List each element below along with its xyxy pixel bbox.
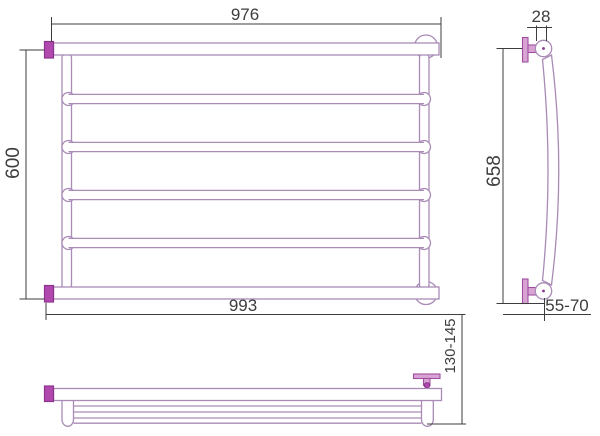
drawing-canvas: 976 600 993 28 658 55-70 130-145: [0, 0, 600, 436]
plan-wall-bracket-plate: [414, 374, 441, 379]
dimension-label-top-width: 976: [231, 5, 259, 24]
front-view: [45, 35, 440, 305]
dimension-label-depth: 130-145: [442, 318, 459, 373]
rail-tube: [62, 237, 431, 250]
top-collector-tube: [54, 43, 440, 55]
dimension-labels: 976 600 993 28 658 55-70 130-145: [3, 5, 589, 374]
dimension-label-height: 600: [3, 147, 24, 179]
plan-union-fitting: [45, 386, 54, 402]
dimension-label-tube-diameter: 28: [532, 7, 551, 26]
bottom-mount-center-dot: [542, 290, 545, 293]
right-riser-tube: [420, 53, 430, 290]
plan-left-tube-end: [62, 400, 74, 426]
curved-tube-profile: [543, 55, 559, 285]
plan-right-tube-end: [422, 400, 434, 426]
plan-collector-tube: [54, 389, 442, 401]
top-left-union-fitting: [45, 42, 54, 59]
top-wall-bracket-plate: [523, 38, 529, 63]
rail-tube: [62, 189, 431, 202]
dimension-label-bottom-width: 993: [229, 296, 257, 315]
top-mount-center-dot: [542, 47, 545, 50]
towel-rail-technical-drawing: 976 600 993 28 658 55-70 130-145: [0, 0, 600, 436]
rail-tube: [62, 141, 431, 154]
plan-bracket-dot: [424, 383, 429, 388]
bottom-wall-bracket-plate: [523, 279, 529, 304]
left-riser-tube: [62, 53, 72, 290]
dimension-label-side-height: 658: [484, 155, 505, 187]
side-view: [523, 38, 559, 304]
rail-tube: [62, 93, 431, 106]
bottom-left-union-fitting: [45, 286, 54, 303]
dimension-label-wall-offset: 55-70: [545, 296, 588, 315]
plan-view: [45, 374, 442, 426]
dimension-lines: [20, 17, 592, 424]
